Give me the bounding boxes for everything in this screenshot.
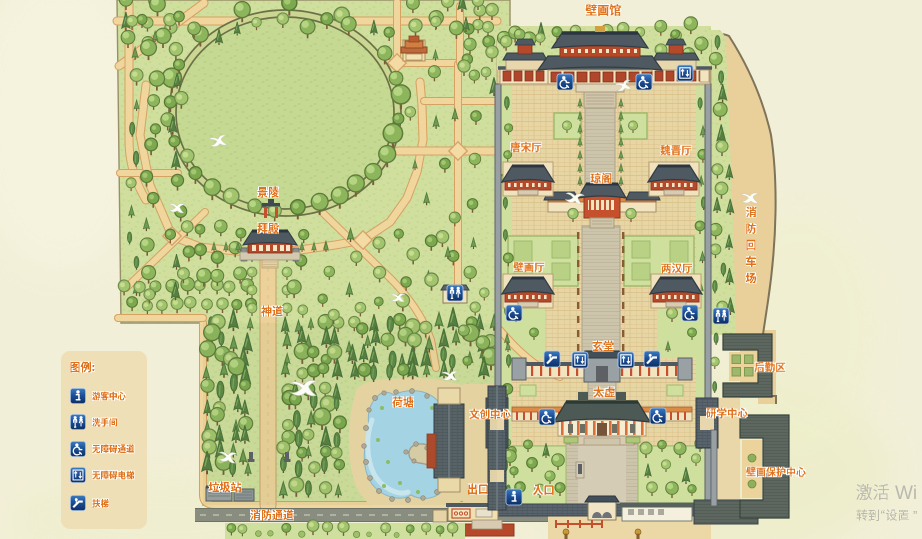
svg-text:Wi: Wi	[895, 483, 917, 504]
svg-text:”: ”	[913, 508, 917, 523]
